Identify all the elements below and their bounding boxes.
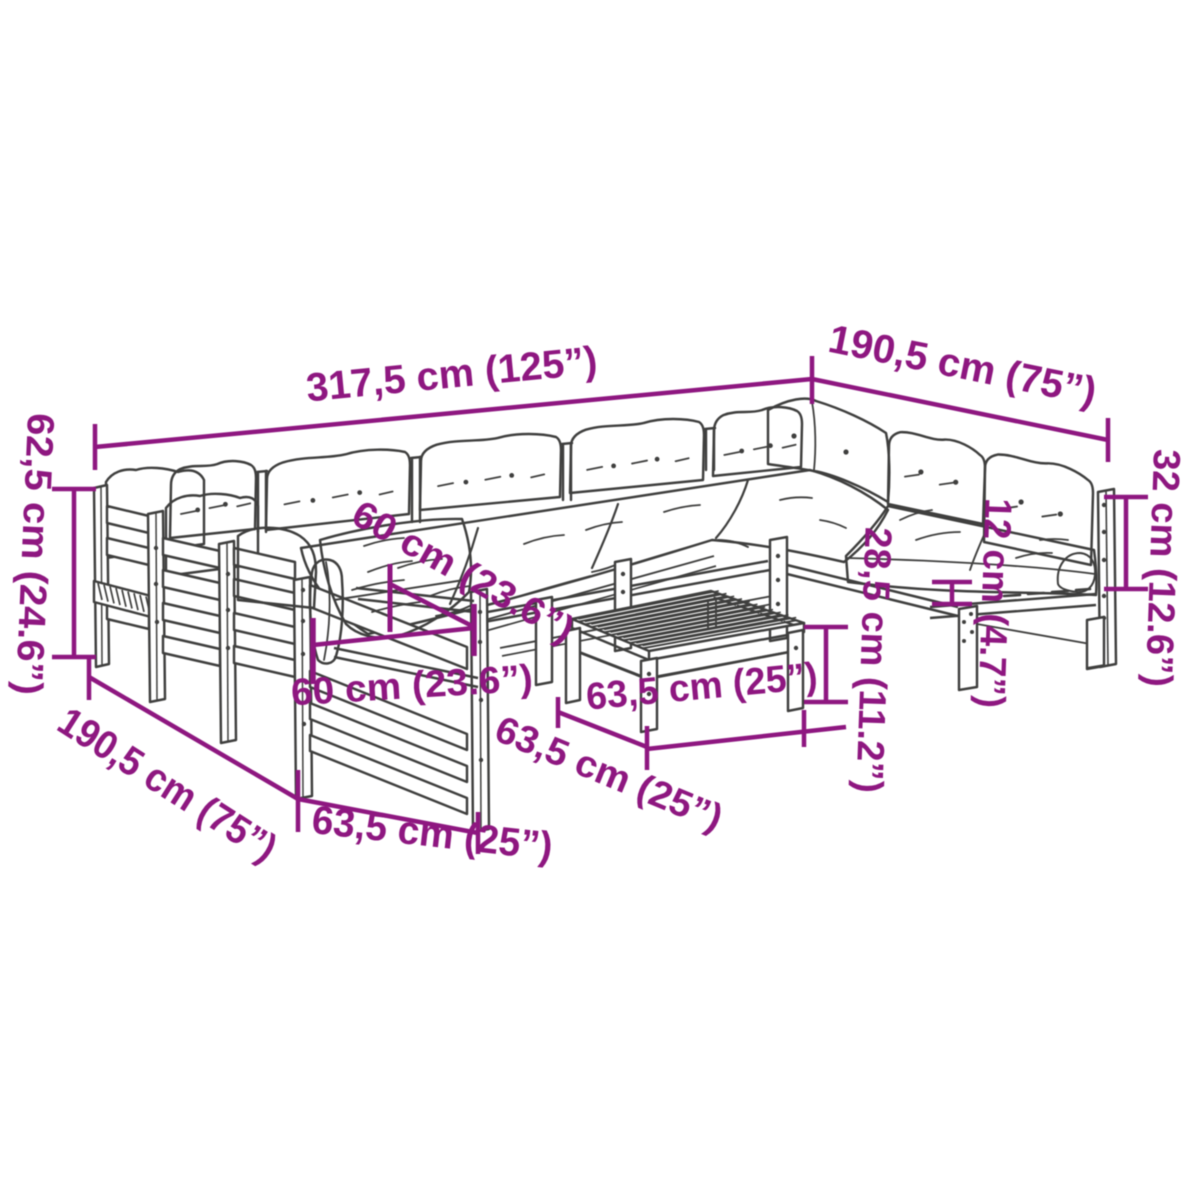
svg-text:12 cm (4.7”): 12 cm (4.7”) [969, 497, 1018, 708]
svg-text:32 cm (12.6”): 32 cm (12.6”) [1137, 448, 1187, 687]
